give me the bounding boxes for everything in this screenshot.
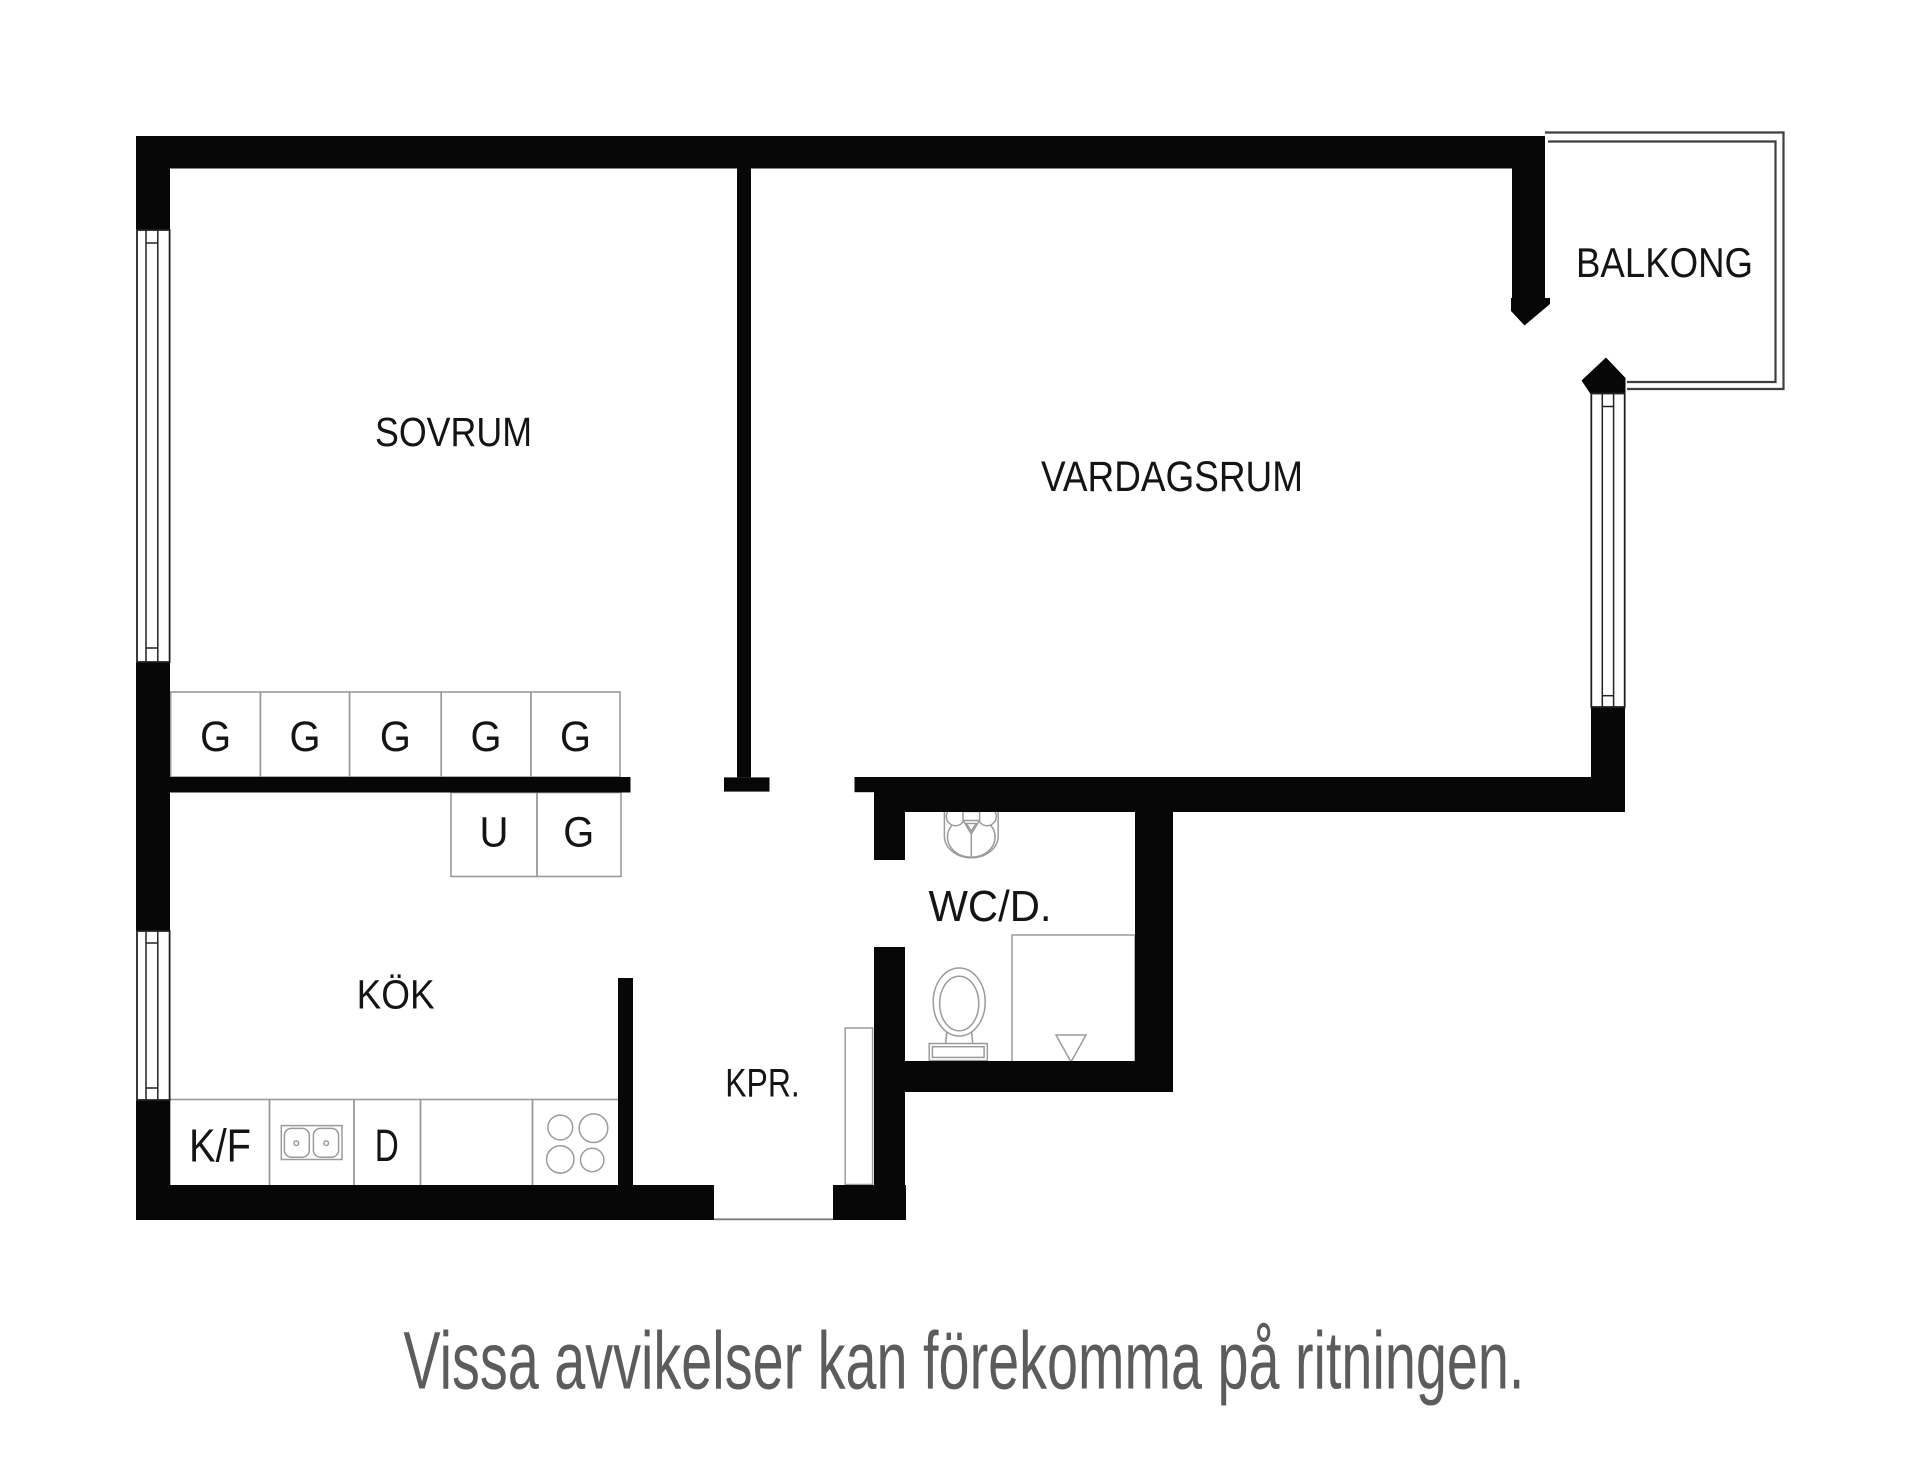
svg-text:VARDAGSRUM: VARDAGSRUM <box>1041 454 1303 501</box>
svg-text:KÖK: KÖK <box>357 971 435 1017</box>
svg-text:SOVRUM: SOVRUM <box>375 409 532 455</box>
svg-text:G: G <box>560 714 591 761</box>
svg-text:D: D <box>375 1120 399 1171</box>
svg-text:G: G <box>471 714 502 761</box>
svg-text:G: G <box>380 714 411 761</box>
svg-text:BALKONG: BALKONG <box>1576 239 1753 286</box>
svg-text:G: G <box>200 714 231 761</box>
svg-text:G: G <box>563 810 594 857</box>
svg-text:KPR.: KPR. <box>725 1062 800 1106</box>
svg-text:G: G <box>290 714 321 761</box>
svg-text:U: U <box>480 810 509 857</box>
svg-text:Vissa avvikelser kan förekomma: Vissa avvikelser kan förekomma på ritnin… <box>403 1315 1524 1406</box>
svg-text:WC/D.: WC/D. <box>929 882 1052 931</box>
svg-text:K/F: K/F <box>189 1119 251 1171</box>
